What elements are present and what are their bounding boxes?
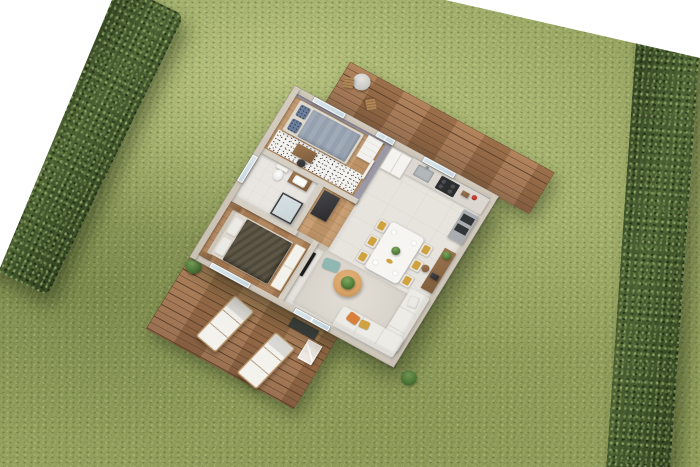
burner [447, 189, 453, 195]
garden-house-render [0, 0, 700, 467]
sun-lounger [195, 295, 255, 353]
bistro-chair [365, 98, 377, 110]
outdoor-rack [297, 339, 322, 365]
hedge-left [0, 0, 184, 296]
bistro-chair [343, 77, 355, 89]
oven-door [454, 223, 469, 236]
hedge-right [606, 6, 700, 467]
oven-door [460, 213, 475, 226]
burner [438, 184, 444, 190]
sun-lounger [236, 331, 296, 389]
